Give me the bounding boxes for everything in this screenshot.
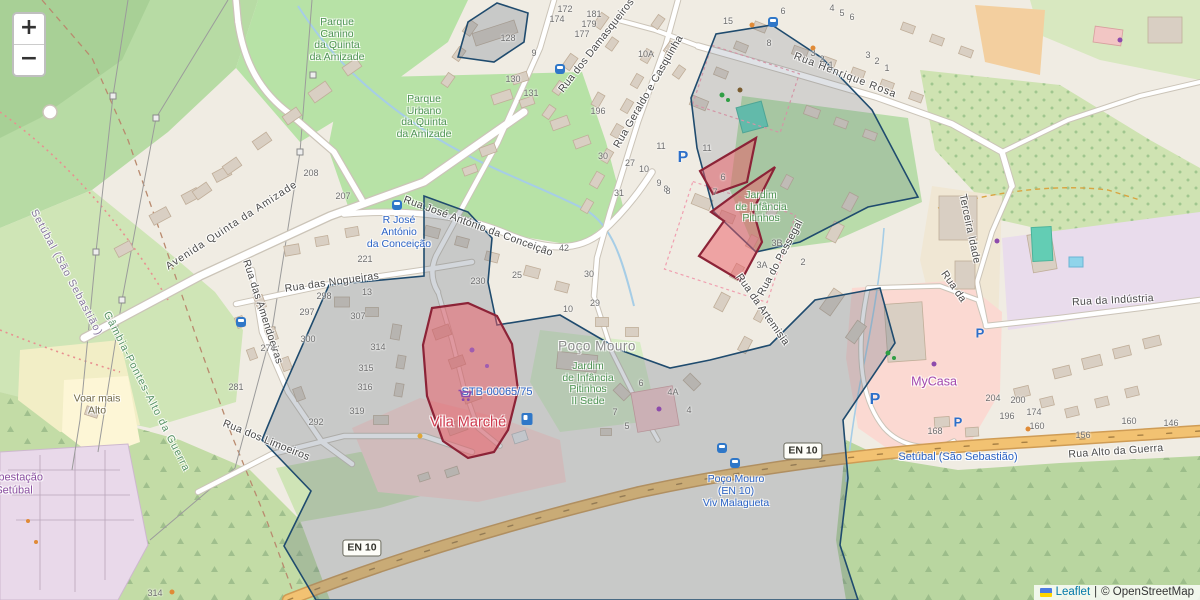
- power-pylon-icon: [153, 115, 159, 121]
- osm-copyright: © OpenStreetMap: [1101, 586, 1194, 598]
- poi-dot-icon: [811, 46, 816, 51]
- poi-dot-icon: [470, 348, 475, 353]
- poi-dot-icon: [886, 351, 891, 356]
- poi-dot-icon: [1118, 38, 1123, 43]
- zoom-out-button[interactable]: −: [14, 45, 44, 75]
- bus-stop-icon: [392, 200, 402, 210]
- poi-dot-icon: [750, 23, 755, 28]
- supermarket-cart-icon: [458, 389, 473, 407]
- poi-dot-icon: [657, 407, 662, 412]
- bus-stop-icon: [717, 443, 727, 453]
- power-pylon-icon: [297, 149, 303, 155]
- fuel-station-icon: [522, 413, 533, 425]
- power-pylon-icon: [119, 297, 125, 303]
- zoom-control: + −: [12, 12, 46, 77]
- power-pylon-icon: [110, 93, 116, 99]
- zoom-in-button[interactable]: +: [14, 14, 44, 45]
- poi-dot-icon: [932, 362, 937, 367]
- poi-dot-icon: [26, 519, 30, 523]
- power-pylon-icon: [310, 72, 316, 78]
- poi-dot-icon: [995, 239, 1000, 244]
- poi-dot-icon: [170, 590, 175, 595]
- poi-dot-icon: [738, 88, 743, 93]
- attribution-separator: |: [1094, 586, 1097, 598]
- bus-stop-icon: [730, 458, 740, 468]
- bus-stop-icon: [555, 64, 565, 74]
- map-base-svg: [0, 0, 1200, 600]
- road-shield-en10-east: EN 10: [783, 443, 822, 460]
- poi-dot-icon: [418, 434, 423, 439]
- road-shield-en10-west: EN 10: [342, 540, 381, 557]
- poi-dot-icon: [720, 93, 725, 98]
- ukraine-flag-icon: [1040, 588, 1052, 597]
- bus-stop-icon: [236, 317, 246, 327]
- poi-dot-icon: [726, 98, 730, 102]
- overlay-polygon-blue-building128[interactable]: [458, 3, 528, 62]
- bus-stop-icon: [768, 17, 778, 27]
- poi-dot-icon: [892, 356, 896, 360]
- power-pylon-icon: [93, 249, 99, 255]
- attribution-bar: Leaflet | © OpenStreetMap: [1034, 585, 1200, 600]
- map-canvas[interactable]: Avenida Quinta da Amizade Rua das Noguei…: [0, 0, 1200, 600]
- leaflet-link[interactable]: Leaflet: [1056, 586, 1091, 598]
- poi-dot-icon: [1026, 427, 1031, 432]
- poi-dot-icon: [34, 540, 38, 544]
- poi-dot-icon: [485, 364, 489, 368]
